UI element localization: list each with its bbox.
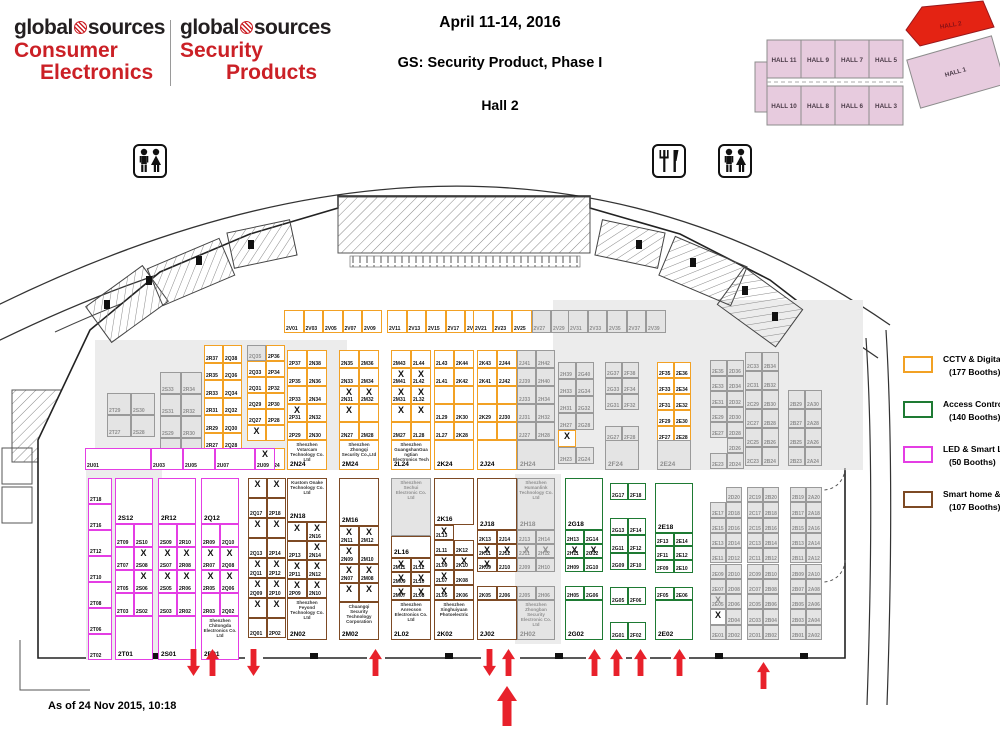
- booth: [477, 386, 497, 404]
- booth-2C11: 2C11: [747, 548, 763, 563]
- booth-2Q12: 2Q12: [201, 478, 239, 524]
- booth-2C27: 2C27: [745, 409, 762, 428]
- booth-2D02: 2D02: [726, 625, 742, 640]
- booth-2D16: 2D16: [726, 518, 742, 533]
- booth-x: X: [710, 609, 726, 624]
- booth-2D14: 2D14: [726, 533, 742, 548]
- booth: [497, 422, 517, 440]
- booth-2D30: 2D30: [727, 407, 744, 423]
- booth-2H39: 2H39: [558, 362, 576, 379]
- booth-2E11: 2E11: [710, 548, 726, 563]
- booth-2M16: 2M16: [339, 478, 379, 526]
- booth-2F02: 2F02: [628, 622, 646, 639]
- entrance-arrow: [757, 662, 770, 689]
- booth-2C33: 2C33: [745, 352, 762, 371]
- booth-2G18: 2G18: [565, 478, 603, 530]
- booth-2G40: 2G40: [576, 362, 594, 379]
- booth-2J12: X2J12: [497, 544, 517, 558]
- booth-2A08: 2A08: [806, 579, 822, 594]
- booth-2B03: 2B03: [790, 609, 806, 624]
- booth-2B25: 2B25: [788, 428, 805, 447]
- event-name: GS: Security Product, Phase I: [300, 55, 700, 71]
- entrance-arrow: [588, 649, 601, 676]
- booth-2R34: 2R34: [181, 372, 202, 394]
- booth-2V35: 2V35: [607, 310, 627, 333]
- booth-2F06: 2F06: [628, 587, 646, 604]
- booth-2C01: 2C01: [747, 625, 763, 640]
- booth-2T10: 2T10: [88, 556, 112, 582]
- booth-2L16: 2L16: [391, 536, 431, 558]
- booth-2B24: 2B24: [762, 447, 779, 466]
- booth-2H40: 2H40: [536, 368, 555, 386]
- booth-2L24: Shenzhen GuangshanGuangtian Electronics …: [391, 440, 431, 470]
- booth-2M08: X2M08: [359, 564, 379, 583]
- booth-2S33: 2S33: [160, 372, 181, 394]
- legend-label: Access Control: [943, 399, 1000, 409]
- booth-2F13: 2F13: [655, 533, 674, 546]
- booth-2P11: X2P11: [287, 560, 307, 579]
- booth-2S28: 2S28: [131, 415, 155, 437]
- booth-2K10: X2K10: [454, 555, 474, 570]
- booth-2F09: 2F09: [655, 560, 674, 573]
- booth-2A18: 2A18: [806, 502, 822, 517]
- booth-2N02: Shenzhen Feyond Technology Co. Ltd2N02: [287, 598, 327, 640]
- logo-line2: Electronics: [14, 62, 165, 84]
- booth-x: X: [247, 425, 266, 441]
- svg-text:HALL 10: HALL 10: [771, 103, 797, 110]
- booth-2T06: 2T06: [88, 608, 112, 634]
- booth-2C07: 2C07: [747, 579, 763, 594]
- booth-2S07: X2S07: [158, 547, 177, 570]
- entrance-arrow: [206, 649, 219, 676]
- booth-2R05: X2R05: [201, 570, 220, 593]
- booth-2Q38: 2Q38: [223, 345, 242, 363]
- booth-2G37: 2G37: [605, 362, 622, 378]
- legend-swatch: [903, 356, 933, 373]
- booth-2N38: 2N38: [307, 350, 327, 368]
- booth-2Q01: 2Q01: [248, 618, 267, 638]
- booth-2V09: 2V09: [362, 310, 382, 333]
- globe-dot-icon: [240, 21, 253, 34]
- booth-2B08: 2B08: [763, 579, 779, 594]
- booth-2Q13: 2Q13: [248, 538, 267, 558]
- booth-2H32: 2H32: [536, 404, 555, 422]
- booth-2G10: 2G10: [584, 558, 603, 572]
- svg-text:HALL 8: HALL 8: [807, 103, 829, 110]
- booth-2K29: 2K29: [477, 404, 497, 422]
- booth-2V17: 2V17: [446, 310, 466, 333]
- booth-2P18: 2P18: [267, 498, 286, 518]
- hall-title: Hall 2: [300, 97, 700, 113]
- booth-2J31: 2J31: [517, 404, 536, 422]
- booth-2V05: 2V05: [323, 310, 343, 333]
- booth-2B12: 2B12: [763, 548, 779, 563]
- booth-2A02: 2A02: [806, 625, 822, 640]
- booth-2E15: 2E15: [710, 518, 726, 533]
- booth-2N31: X2N31: [339, 386, 359, 404]
- booth-2T07: 2T07: [115, 547, 134, 570]
- booth-2E32: 2E32: [674, 394, 691, 410]
- booth-2D18: 2D18: [726, 502, 742, 517]
- booth-2E10: 2E10: [674, 560, 693, 573]
- booth-2B29: 2B29: [788, 390, 805, 409]
- booth-2R08: X2R08: [177, 547, 196, 570]
- floorplan-page: { "header": { "logo1": {"brand_a": "glob…: [0, 0, 1000, 746]
- booth-2E14: 2E14: [674, 533, 693, 546]
- booth-2S05: X2S05: [158, 570, 177, 593]
- legend-swatch: [903, 401, 933, 418]
- booth-2K41: 2K41: [477, 368, 497, 386]
- booth-2M41: X2M41: [391, 368, 411, 386]
- booth-x: X: [558, 430, 576, 447]
- booth-2P02: 2P02: [267, 618, 286, 638]
- booth-2F10: 2F10: [628, 553, 646, 570]
- booth-2J44: 2J44: [497, 350, 517, 368]
- booth-2L29: 2L29: [434, 404, 454, 422]
- booth-2C15: 2C15: [747, 518, 763, 533]
- booth-2S10: 2S10: [134, 524, 153, 547]
- booth-2J39: 2J39: [517, 368, 536, 386]
- legend-count: (140 Booths): [949, 412, 1000, 422]
- booth-2G01: 2G01: [610, 622, 628, 639]
- booth-2E12: 2E12: [674, 546, 693, 559]
- booth-2V21: 2V21: [473, 310, 493, 333]
- booth-2E29: 2E29: [710, 407, 727, 423]
- booth-2H13: 2H13: [565, 530, 584, 544]
- booth-2B32: 2B32: [762, 371, 779, 390]
- booth-2H24: 2H24: [517, 440, 555, 470]
- booth-2K16: 2K16: [434, 478, 474, 525]
- booth-2L27: 2L27: [434, 422, 454, 440]
- entrance-arrow: [247, 649, 260, 676]
- booth-2B20: 2B20: [763, 487, 779, 502]
- booth-2L32: X2L32: [411, 386, 431, 404]
- booth-2B28: 2B28: [762, 409, 779, 428]
- booth-2F32: 2F32: [622, 394, 639, 410]
- legend-count: (107 Booths): [949, 502, 1000, 512]
- booth-2E27: 2E27: [710, 422, 727, 438]
- booth: [434, 386, 454, 404]
- booth-2L43: 2L43: [434, 350, 454, 368]
- booth-2B09: 2B09: [790, 564, 806, 579]
- hall-overview-map: HALL 11HALL 9HALL 7HALL 5HALL 10HALL 8HA…: [750, 0, 1000, 130]
- booth-2U03: 2U03: [151, 448, 183, 470]
- booth: [497, 386, 517, 404]
- booth-2J02: 2J02: [477, 600, 517, 640]
- booth-2A26: 2A26: [805, 428, 822, 447]
- booth-2B05: 2B05: [790, 594, 806, 609]
- booth-2R32: 2R32: [181, 394, 202, 416]
- globe-dot-icon: [74, 21, 87, 34]
- booth-2A16: 2A16: [806, 518, 822, 533]
- booth-2G13: 2G13: [610, 518, 628, 535]
- booth-2E34: 2E34: [674, 378, 691, 394]
- booth-2P10: X2P10: [267, 578, 286, 598]
- booth-2G33: 2G33: [605, 378, 622, 394]
- booth-2R02: 2R02: [177, 593, 196, 616]
- booth-2C17: 2C17: [747, 502, 763, 517]
- booth-2V03: 2V03: [304, 310, 324, 333]
- booth-2E05: X2E05: [710, 594, 726, 609]
- booth-2Q30: 2Q30: [223, 415, 242, 433]
- booth-2V07: 2V07: [343, 310, 363, 333]
- booth-2E17: 2E17: [710, 502, 726, 517]
- booth-2L13: X2L13: [434, 525, 454, 540]
- booth-2C31: 2C31: [745, 371, 762, 390]
- booth-2A12: 2A12: [806, 548, 822, 563]
- booth-2F31: 2F31: [657, 394, 674, 410]
- booth-2G34: 2G34: [576, 379, 594, 396]
- booth-2B19: 2B19: [790, 487, 806, 502]
- booth-2K12: 2K12: [454, 540, 474, 555]
- booth-2V23: 2V23: [493, 310, 513, 333]
- booth-2Q36: 2Q36: [223, 363, 242, 381]
- booth: [477, 422, 497, 440]
- booth-2N36: 2N36: [307, 368, 327, 386]
- booth-2S12: 2S12: [115, 478, 153, 524]
- legend-swatch: [903, 446, 933, 463]
- booth-x: X: [339, 404, 359, 422]
- booth-2R35: 2R35: [204, 363, 223, 381]
- booth-2V25: 2V25: [512, 310, 532, 333]
- booth-2R37: 2R37: [204, 345, 223, 363]
- booth-2F14: 2F14: [628, 518, 646, 535]
- booth-2P33: 2P33: [287, 386, 307, 404]
- logo-line1: Consumer: [14, 40, 165, 62]
- entrance-arrow: [673, 649, 686, 676]
- booth-2T01: 2T01: [115, 616, 153, 660]
- booth-2C25: 2C25: [745, 428, 762, 447]
- booth-x: X: [359, 583, 379, 602]
- booth-2T12: 2T12: [88, 530, 112, 556]
- booth-2D34: 2D34: [727, 376, 744, 392]
- booth-2H06: 2H06: [536, 586, 555, 600]
- booth-2R33: 2R33: [204, 380, 223, 398]
- booth-2H02: Shenzhen Zhongban Security Electronic Co…: [517, 600, 555, 640]
- booth-2K24: 2K24: [434, 440, 474, 470]
- booth-2P35: 2P35: [287, 368, 307, 386]
- booth-2T02: 2T02: [88, 634, 112, 660]
- booth-2G24: 2G24: [576, 447, 594, 464]
- booth-2C29: 2C29: [745, 390, 762, 409]
- booth-2K42: 2K42: [454, 368, 474, 386]
- booth-2B10: 2B10: [763, 564, 779, 579]
- booth-2J27: 2J27: [517, 422, 536, 440]
- booth-2P31: X2P31: [287, 404, 307, 422]
- booth-2C19: 2C19: [747, 487, 763, 502]
- booth-2Q08: X2Q08: [220, 547, 239, 570]
- booth-2P36: 2P36: [266, 345, 285, 361]
- booth-2M10: 2M10: [359, 545, 379, 564]
- legend-label: CCTV & Digital Surv: [943, 354, 1000, 364]
- booth-2J06: 2J06: [497, 586, 517, 600]
- booth-2G31: 2G31: [605, 394, 622, 410]
- booth-2A10: 2A10: [806, 564, 822, 579]
- booth-2M28: 2M28: [359, 422, 379, 440]
- booth-2J05: 2J05: [517, 586, 536, 600]
- booth-2Q34: 2Q34: [223, 380, 242, 398]
- booth-2J10: 2J10: [497, 558, 517, 572]
- booth-2H18: Shenzhen Humanlink Technology Co. Ltd2H1…: [517, 478, 555, 530]
- booth-2J11: X2J11: [517, 544, 536, 558]
- booth-x: X: [339, 583, 359, 602]
- booth-2R03: 2R03: [201, 593, 220, 616]
- booth-2B13: 2B13: [790, 533, 806, 548]
- booth-2F34: 2F34: [622, 378, 639, 394]
- booth-2H42: 2H42: [536, 350, 555, 368]
- booth-2N33: 2N33: [339, 368, 359, 386]
- booth-2A24: 2A24: [805, 447, 822, 466]
- entrance-arrow: [502, 649, 515, 676]
- booth-2F18: 2F18: [628, 483, 646, 500]
- booth-2F33: 2F33: [657, 378, 674, 394]
- booth-2B27: 2B27: [788, 409, 805, 428]
- booth-2G17: 2G17: [610, 483, 628, 500]
- booth-2B34: 2B34: [762, 352, 779, 371]
- booth-2B04: 2B04: [763, 609, 779, 624]
- booth-2P28: 2P28: [266, 409, 285, 425]
- booth-2P30: 2P30: [266, 393, 285, 409]
- booth-2K30: 2K30: [454, 404, 474, 422]
- booth-2E35: 2E35: [710, 360, 727, 376]
- booth-2P13: 2P13: [287, 541, 307, 560]
- booth-x: X: [411, 404, 431, 422]
- booth-2V11: 2V11: [387, 310, 407, 333]
- booth: [454, 386, 474, 404]
- booth-2S06: X2S06: [134, 570, 153, 593]
- booth-2N14: X2N14: [307, 541, 327, 560]
- booth-x: X: [267, 518, 286, 538]
- booth-2N24: Shenzhen Vstarcam Technology Co. Ltd2N24: [287, 440, 327, 470]
- booth-2Q06: X2Q06: [220, 570, 239, 593]
- booth-2L12: X2L12: [411, 558, 431, 572]
- booth-2V39: 2V39: [646, 310, 666, 333]
- booth-2N18: Kustom Onake Technology Co. Ltd2N18: [287, 478, 327, 522]
- booth-2B02: 2B02: [763, 625, 779, 640]
- booth-2J41: 2J41: [517, 350, 536, 368]
- booth-2N27: 2N27: [339, 422, 359, 440]
- booth-2D32: 2D32: [727, 391, 744, 407]
- booth-2J24: 2J24: [477, 440, 517, 470]
- booth-2G28: 2G28: [576, 413, 594, 430]
- booth-2F38: 2F38: [622, 362, 639, 378]
- booth-2E06: 2E06: [674, 587, 693, 600]
- booth-2G12: X2G12: [584, 544, 603, 558]
- booth-2V27: 2V27: [532, 310, 552, 333]
- booth-2F05: 2F05: [655, 587, 674, 600]
- legend-swatch: [903, 491, 933, 508]
- booth-2Q27: 2Q27: [247, 409, 266, 425]
- booth-2P14: 2P14: [267, 538, 286, 558]
- booth-2R06: X2R06: [177, 570, 196, 593]
- booth-2R29: 2R29: [204, 415, 223, 433]
- booth-2L07: X2L07: [434, 570, 454, 585]
- booth-2D26: 2D26: [727, 438, 744, 454]
- booth-2T16: 2T16: [88, 504, 112, 530]
- booth-2J33: 2J33: [517, 386, 536, 404]
- booth-2L02: Shenzhen Anrecson Electronics Co. Ltd2L0…: [391, 600, 431, 640]
- booth-2H10: 2H10: [536, 558, 555, 572]
- entrance-arrow: [610, 649, 623, 676]
- booth-2T18: 2T18: [88, 478, 112, 504]
- booth-2P12: X2P12: [267, 558, 286, 578]
- booth-2M07: X2M07: [391, 586, 411, 600]
- booth-2E36: 2E36: [674, 362, 691, 378]
- booth-2B11: 2B11: [790, 548, 806, 563]
- booth-2K05: 2K05: [477, 586, 497, 600]
- booth-2L05: X2L05: [434, 585, 454, 600]
- booth-2B15: 2B15: [790, 518, 806, 533]
- booth-2L10: X2L10: [411, 572, 431, 586]
- booth-2E13: 2E13: [710, 533, 726, 548]
- booth-2Q32: 2Q32: [223, 398, 242, 416]
- booth-2K11: X2K11: [477, 544, 497, 558]
- booth-2D06: 2D06: [726, 594, 742, 609]
- booth-2B06: 2B06: [763, 594, 779, 609]
- booth-2C23: 2C23: [745, 447, 762, 466]
- booth-x: X: [287, 522, 307, 541]
- booth-2D24: 2D24: [727, 453, 744, 469]
- booth-2E30: 2E30: [674, 410, 691, 426]
- booth-2S30: 2S30: [131, 393, 155, 415]
- booth-2M02: Chuangqi Security Technology Corporation…: [339, 602, 379, 640]
- booth-2N34: 2N34: [307, 386, 327, 404]
- booth-2N09: X2N09: [339, 545, 359, 564]
- booth-2V31: 2V31: [568, 310, 588, 333]
- booth-2E23: 2E23: [710, 453, 727, 469]
- legend-label: Smart home & Syst: [943, 489, 1000, 499]
- legend-label: LED & Smart Lighti: [943, 444, 1000, 454]
- booth-2J18: 2J18: [477, 478, 517, 530]
- booth-2V37: 2V37: [627, 310, 647, 333]
- booth-2L44: 2L44: [411, 350, 431, 368]
- booth-2M27: 2M27: [391, 422, 411, 440]
- booth-2E07: 2E07: [710, 579, 726, 594]
- booth-2T27: 2T27: [107, 415, 131, 437]
- entrance-arrow: [634, 649, 647, 676]
- booth-2U05: 2U05: [183, 448, 215, 470]
- booth-2E09: 2E09: [710, 564, 726, 579]
- logo-divider: [170, 20, 171, 86]
- booth-2H11: X2H11: [565, 544, 584, 558]
- booth-2J13: 2J13: [517, 530, 536, 544]
- booth-2H31: 2H31: [558, 396, 576, 413]
- booth-2F35: 2F35: [657, 362, 674, 378]
- booth-x: X: [248, 478, 267, 498]
- booth-2N16: X2N16: [307, 522, 327, 541]
- booth-2B26: 2B26: [762, 428, 779, 447]
- booth-2T08: 2T08: [88, 582, 112, 608]
- booth-2H12: X2H12: [536, 544, 555, 558]
- booth-2K28: 2K28: [454, 422, 474, 440]
- booth-x: X: [267, 598, 286, 618]
- booth-2K43: 2K43: [477, 350, 497, 368]
- booth-2B14: 2B14: [763, 533, 779, 548]
- booth-2G06: 2G06: [584, 586, 603, 600]
- booth-2L11: 2L11: [434, 540, 454, 555]
- booth-2E31: 2E31: [710, 391, 727, 407]
- entrance-arrow: [369, 649, 382, 676]
- booth-2M12: X2M12: [359, 526, 379, 545]
- logo-consumer-electronics: globalsources Consumer Electronics: [14, 16, 165, 84]
- entrance-arrow: [497, 686, 517, 726]
- booth-2H28: 2H28: [536, 422, 555, 440]
- booth-2A20: 2A20: [806, 487, 822, 502]
- booth-2K02: Shenzhen Xinghuiyuan Photoelectric2K02: [434, 600, 474, 640]
- booth-2E33: 2E33: [710, 376, 727, 392]
- booth-2L28: 2L28: [411, 422, 431, 440]
- restroom-icon: [718, 144, 752, 178]
